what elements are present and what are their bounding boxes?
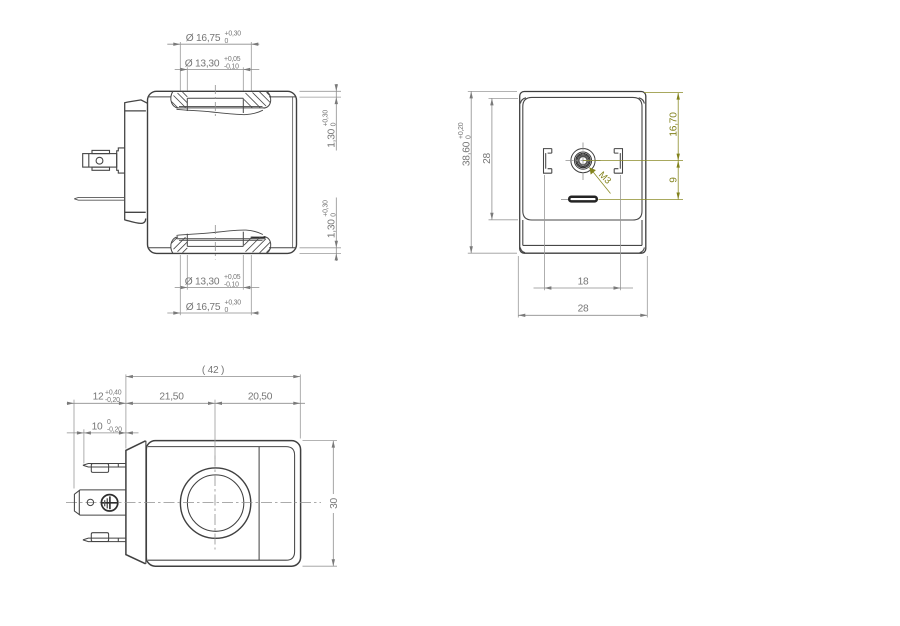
svg-text:+0,05: +0,05 (224, 274, 241, 281)
svg-text:0: 0 (225, 307, 229, 314)
svg-text:10: 10 (92, 421, 103, 432)
svg-text:+0,30: +0,30 (225, 31, 242, 38)
svg-text:( 42 ): ( 42 ) (202, 365, 224, 376)
svg-text:0: 0 (225, 38, 229, 45)
svg-text:20,50: 20,50 (248, 392, 273, 403)
svg-text:38,60: 38,60 (461, 141, 472, 166)
svg-text:0: 0 (107, 419, 111, 426)
svg-text:1,30: 1,30 (327, 219, 338, 238)
svg-text:+0,30: +0,30 (323, 110, 330, 127)
svg-text:Ø 13,30: Ø 13,30 (185, 59, 220, 70)
svg-text:18: 18 (578, 277, 589, 288)
svg-text:Ø 13,30: Ø 13,30 (185, 277, 220, 288)
svg-text:-0,20: -0,20 (105, 397, 120, 404)
svg-text:12: 12 (93, 392, 104, 403)
svg-text:0: 0 (330, 122, 337, 126)
svg-text:28: 28 (482, 153, 493, 164)
svg-text:+0,20: +0,20 (458, 122, 465, 139)
svg-text:+0,30: +0,30 (225, 300, 242, 307)
svg-text:-0,20: -0,20 (107, 426, 122, 433)
svg-text:21,50: 21,50 (159, 392, 184, 403)
svg-text:0: 0 (465, 135, 472, 139)
svg-text:-0,10: -0,10 (224, 64, 239, 71)
svg-text:+0,05: +0,05 (224, 56, 241, 63)
svg-text:Ø 16,75: Ø 16,75 (186, 302, 221, 313)
svg-text:+0,40: +0,40 (105, 389, 122, 396)
svg-text:-0,10: -0,10 (224, 282, 239, 289)
svg-text:0: 0 (330, 213, 337, 217)
svg-text:+0,30: +0,30 (323, 200, 330, 217)
svg-text:30: 30 (329, 498, 340, 509)
svg-text:M3: M3 (597, 169, 614, 186)
svg-text:28: 28 (578, 304, 589, 315)
svg-text:16,70: 16,70 (668, 112, 679, 137)
svg-text:1,30: 1,30 (327, 128, 338, 147)
svg-text:Ø 16,75: Ø 16,75 (186, 33, 221, 44)
svg-text:9: 9 (668, 177, 679, 183)
